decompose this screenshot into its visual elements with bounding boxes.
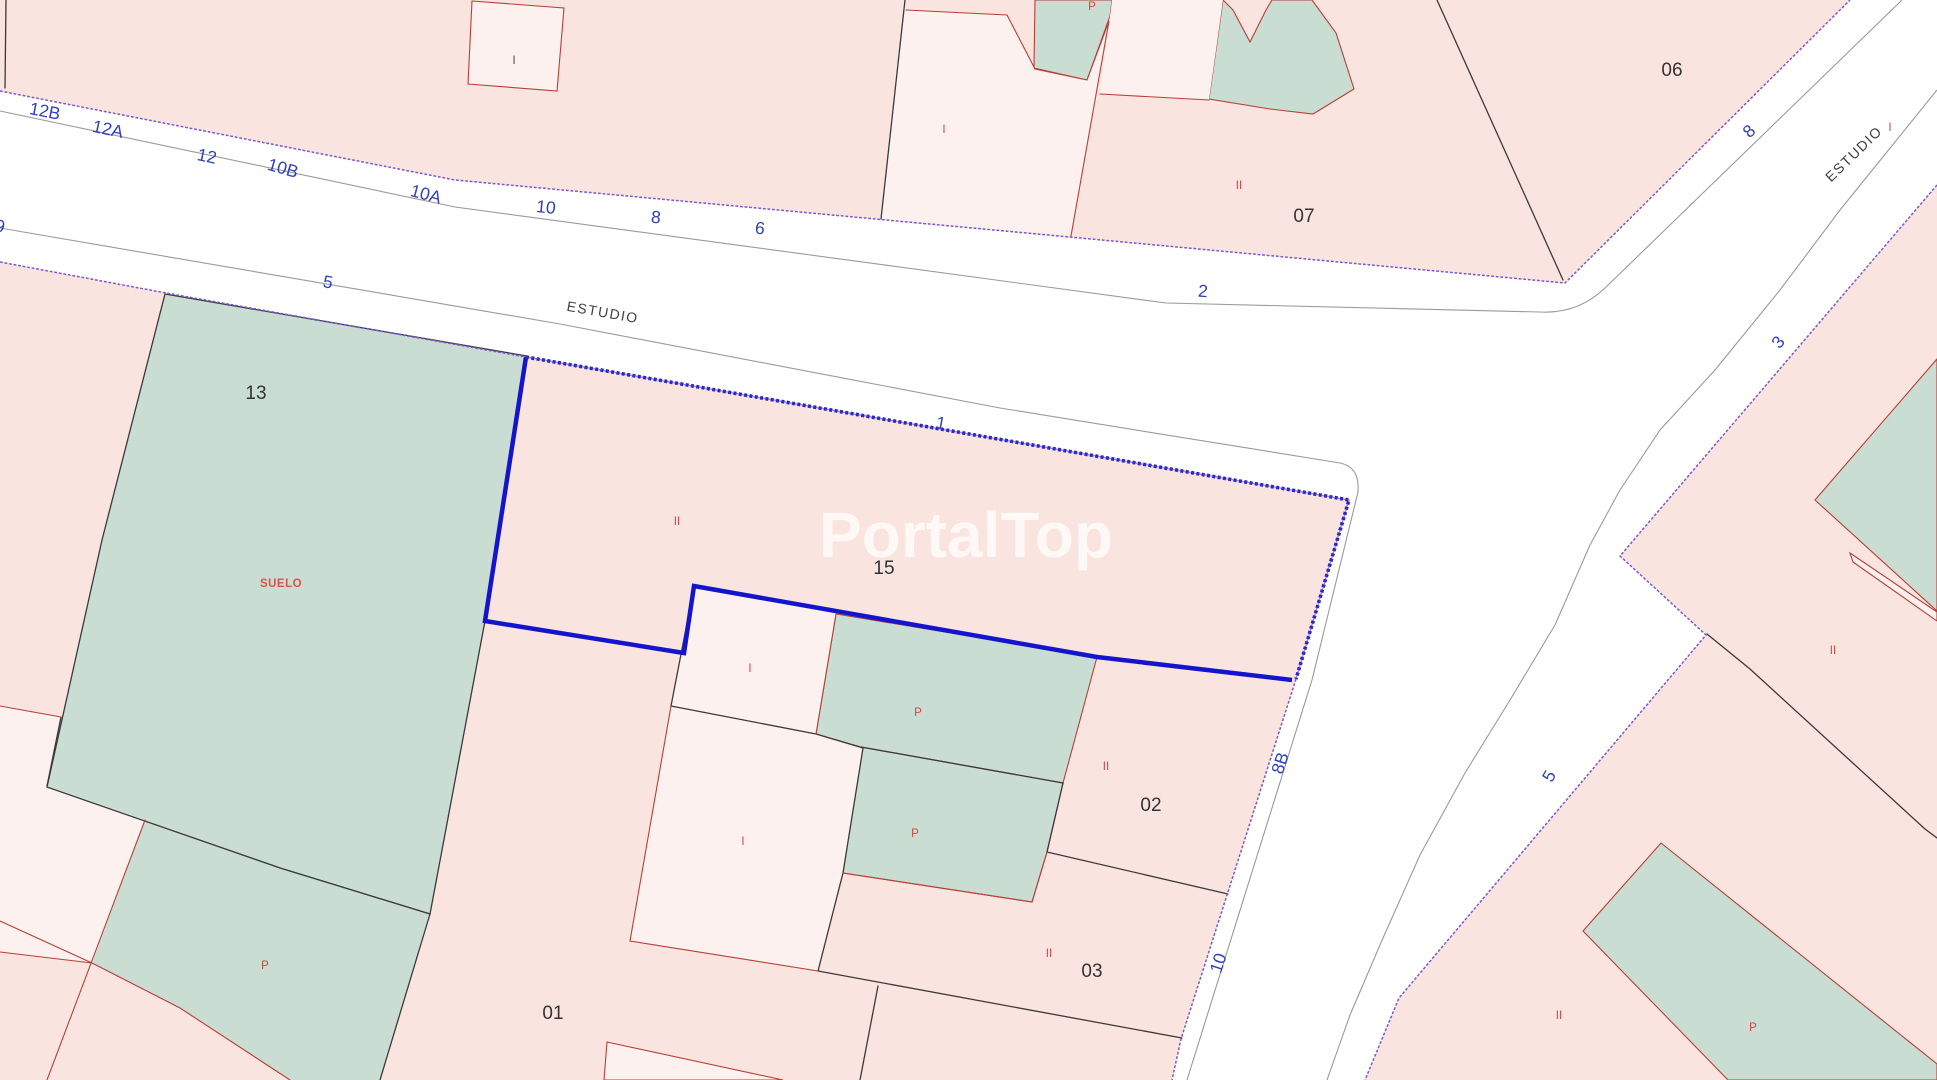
svg-text:II: II xyxy=(1556,1010,1562,1022)
svg-text:02: 02 xyxy=(1140,795,1161,816)
svg-text:12: 12 xyxy=(195,144,218,168)
svg-text:II: II xyxy=(1830,645,1836,657)
svg-text:10: 10 xyxy=(535,196,557,218)
svg-text:I: I xyxy=(1888,122,1891,134)
svg-text:6: 6 xyxy=(754,218,766,239)
svg-text:I: I xyxy=(942,124,945,136)
svg-text:06: 06 xyxy=(1661,60,1682,81)
svg-text:P: P xyxy=(911,828,919,840)
svg-text:8: 8 xyxy=(650,207,662,228)
svg-text:13: 13 xyxy=(245,383,266,404)
svg-text:I: I xyxy=(748,663,751,675)
svg-text:PortalTop: PortalTop xyxy=(819,499,1113,571)
svg-text:P: P xyxy=(1749,1022,1757,1034)
svg-text:P: P xyxy=(1088,1,1096,13)
svg-text:01: 01 xyxy=(542,1003,563,1024)
svg-text:P: P xyxy=(914,707,922,719)
svg-text:I: I xyxy=(512,53,515,67)
svg-text:P: P xyxy=(261,960,269,972)
svg-text:II: II xyxy=(1236,180,1242,192)
svg-text:II: II xyxy=(674,516,680,528)
svg-text:SUELO: SUELO xyxy=(260,578,302,590)
svg-text:I: I xyxy=(741,836,744,848)
svg-text:07: 07 xyxy=(1293,206,1314,227)
svg-text:II: II xyxy=(1103,761,1109,773)
svg-text:II: II xyxy=(1046,948,1052,960)
svg-text:2: 2 xyxy=(1197,281,1208,302)
svg-text:03: 03 xyxy=(1081,961,1102,982)
